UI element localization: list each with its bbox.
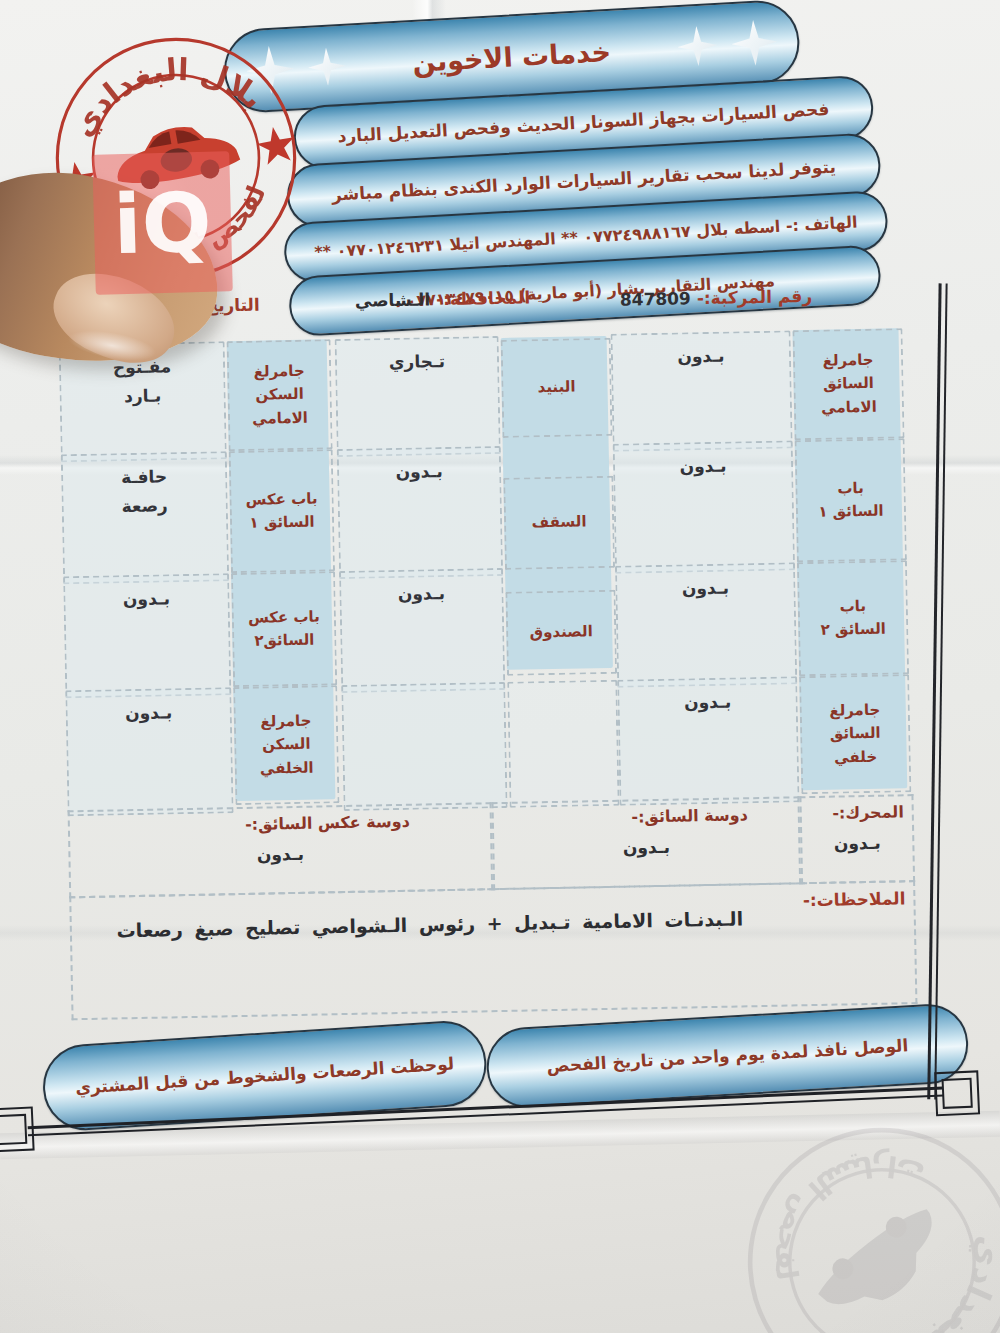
- grid-label-text: باب السائق ١: [818, 476, 884, 524]
- grid-value-text: بـدون: [679, 452, 727, 482]
- grid-cell-label: الصندوق: [505, 590, 617, 676]
- grid-label-text: باب السائق ٢: [820, 594, 886, 642]
- passenger-pedal-label: دوسة عكس السائق:-: [245, 812, 410, 834]
- grid-label-text: جامرلغ السائق الامامي: [820, 349, 877, 420]
- grid-cell-value: بـدون: [613, 440, 795, 573]
- page-title: خدمات الاخوين: [398, 35, 626, 79]
- star-group-right: [676, 19, 778, 71]
- vehicle-number-value: 847809: [614, 288, 691, 309]
- notes-box: الملاحظات:- الـبدنـات الامامية تـبديل + …: [69, 880, 917, 1020]
- grid-cell-label: جامرلغ السكن الامامي: [227, 339, 333, 451]
- grid-label-text: جامرلغ السكن الخلفي: [259, 710, 314, 781]
- grid-cell-label: البنيد: [501, 338, 613, 438]
- grid-cell-label: السقف: [503, 476, 615, 570]
- grid-label-text: جامرلغ السائق خلفي: [829, 699, 881, 770]
- grid-cell-value: بـدون: [617, 676, 799, 805]
- grid-cell-label: باب السائق ١: [795, 438, 907, 562]
- grid-label-text: باب عكس السائق ١: [246, 487, 319, 535]
- grid-value-text: بـدون: [684, 688, 732, 718]
- grid-value-text: حافـة رصعة: [121, 462, 168, 521]
- engine-value: بـدون: [802, 832, 912, 854]
- banner-text: لوحظت الرصعات والشخوط من قبل المشتري: [61, 1052, 469, 1098]
- grid-label-text: باب عكس السائق٢: [248, 605, 321, 653]
- border-corner-ornament: [0, 1107, 35, 1153]
- engine-box: المحرك:- بـدون: [799, 794, 915, 884]
- engine-label: المحرك:-: [832, 802, 904, 822]
- grid-value-text: بـدون: [677, 342, 725, 372]
- watermark-text: iQ: [112, 174, 212, 272]
- grid-cell-label: جامرلغ السائق الامامي: [792, 328, 904, 440]
- grid-cell-value: حافـة رصعة: [61, 451, 229, 584]
- grid-value-text: بـدون: [398, 579, 446, 609]
- grid-value-text: بـدون: [123, 584, 171, 614]
- passenger-pedal-box: دوسة عكس السائق:- بـدون: [68, 802, 494, 898]
- grid-cell-label: باب عكس السائق ١: [229, 449, 335, 573]
- governorate-label: المحافظة:-: [436, 287, 530, 309]
- star-icon: [307, 47, 347, 87]
- driver-pedal-box: دوسة السائق:- بـدون: [491, 796, 801, 890]
- grid-cell-label: جامرلغ السائق خلفي: [799, 674, 911, 794]
- notes-text: الـبدنـات الامامية تـبديل + رئوس الـشواص…: [96, 907, 764, 942]
- star-icon: [730, 19, 778, 67]
- driver-pedal-value: بـدون: [494, 834, 798, 860]
- grid-label-text: جامرلغ السكن الامامي: [251, 360, 308, 431]
- vehicle-number-field: رقم المركبة:- 847809: [614, 286, 813, 310]
- grid-value-text: بـدون: [125, 698, 173, 728]
- grid-cell-label: جامرلغ السكن الخلفي: [233, 685, 339, 805]
- grid-value-text: تـجاري: [389, 347, 446, 377]
- grid-cell-value: بـدون: [339, 568, 505, 693]
- vehicle-number-label: رقم المركبة:-: [697, 286, 813, 308]
- grid-cell-value: بـدون: [337, 446, 503, 579]
- governorate-field: المحافظة:- الـشاصي: [349, 287, 531, 310]
- governorate-value: الـشاصي: [349, 289, 431, 311]
- iq-watermark: iQ: [92, 151, 233, 295]
- grid-cell-label: باب السائق ٢: [797, 560, 909, 676]
- grid-cell-empty: [341, 682, 507, 811]
- banner-text: الوصل نافذ لمدة يوم واحد من تاريخ الفحص: [532, 1035, 923, 1077]
- grid-value-text: بـدون: [395, 457, 443, 487]
- grid-cell-empty: [507, 680, 619, 808]
- grid-label-text: البنيد: [537, 376, 575, 400]
- grid-cell-value: بـدون: [65, 687, 233, 816]
- grid-label-text: السقف: [532, 511, 587, 535]
- grid-cell-value: بـدون: [615, 562, 797, 687]
- grid-value-text: بـدون: [682, 574, 730, 604]
- star-icon: [676, 25, 718, 67]
- driver-pedal-label: دوسة السائق:-: [631, 805, 748, 826]
- passenger-pedal-value: بـدون: [70, 840, 490, 868]
- grid-cell-value: بـدون: [611, 330, 793, 451]
- notes-label: الملاحظات:-: [803, 888, 906, 910]
- grid-cell-label: باب عكس السائق٢: [231, 571, 337, 687]
- car-icon: [809, 1197, 956, 1331]
- grid-cell-value: تـجاري: [335, 336, 501, 457]
- grid-label-text: الصندوق: [529, 621, 593, 645]
- grid-cell-value: بـدون: [63, 573, 231, 698]
